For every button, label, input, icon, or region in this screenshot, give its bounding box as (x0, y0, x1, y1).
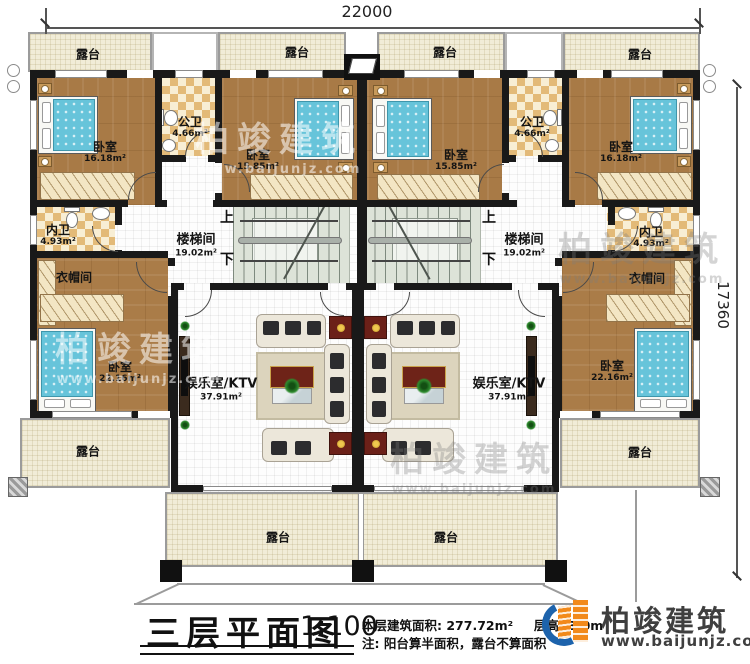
logo-building (558, 605, 571, 639)
room-label-cloakroom-1: 衣帽间 (56, 271, 92, 284)
window (30, 340, 37, 400)
company-logo-icon (542, 596, 596, 650)
room-label-ktv-1: 娱乐室/KTV37.91m² (185, 378, 258, 403)
stair-line (372, 220, 470, 222)
sliding-door (203, 486, 332, 491)
bed-bedroom-3 (372, 98, 432, 160)
wall-ensuite (562, 251, 693, 258)
wall-partition (502, 78, 509, 163)
room-label-terrace: 露台 (628, 48, 652, 61)
window (611, 70, 663, 78)
plant-icon (416, 378, 432, 394)
wall-partition (215, 78, 222, 163)
wardrobe (40, 172, 135, 200)
sink (92, 207, 110, 220)
deck-bottom-line (134, 603, 587, 605)
plant-icon (180, 321, 190, 331)
wall-partition (215, 193, 222, 207)
nightstand (373, 85, 388, 96)
ground-line-right (635, 490, 637, 602)
room-label-public-bath-2: 公卫4.66m² (514, 116, 550, 140)
nightstand (38, 83, 52, 94)
room-label-terrace: 露台 (434, 531, 458, 544)
room-label-public-bath-1: 公卫4.66m² (172, 116, 208, 140)
wall-party-lower (352, 283, 364, 492)
company-website: www.baijunjz.com (601, 632, 750, 650)
floor-plan-sheet: 22000 17360 (0, 0, 750, 664)
window (30, 215, 37, 245)
speaker (329, 432, 352, 455)
room-label-terrace: 露台 (76, 445, 100, 458)
window (52, 411, 132, 418)
speaker (364, 432, 387, 455)
plant-icon (526, 420, 536, 430)
wall-party-upper (357, 70, 367, 290)
wall-bath (162, 155, 186, 162)
window (693, 215, 700, 245)
wall-partition (562, 78, 569, 207)
wardrobe (250, 174, 353, 200)
stair-up-label: 上 (482, 207, 496, 227)
post-cap (703, 80, 716, 93)
wall-ktv-bottom (524, 485, 559, 492)
post-cap (7, 80, 20, 93)
stair-down-label: 下 (482, 249, 496, 269)
deck-edge-line (177, 583, 545, 585)
chimney (344, 54, 380, 80)
plan-note: 注: 阳台算半面积，露台不算面积 (362, 633, 546, 652)
nightstand (338, 162, 353, 173)
room-label-cloakroom-2: 衣帽间 (629, 272, 665, 285)
terrace-gap-right (505, 32, 563, 72)
speaker (364, 316, 387, 339)
wall-partition (502, 193, 509, 207)
wall-ktv-right (552, 283, 559, 492)
wall-partition (155, 78, 162, 207)
column (352, 560, 374, 582)
stair-up-label: 上 (220, 207, 234, 227)
stair-line (240, 260, 338, 262)
nightstand (677, 83, 691, 94)
logo-building (573, 600, 588, 642)
wall-stair-bottom (394, 283, 512, 290)
right-dimension-line (736, 87, 738, 578)
wall-mid (30, 200, 128, 207)
top-dimension-line (45, 27, 700, 29)
room-label-terrace: 露台 (76, 48, 100, 61)
nightstand (38, 156, 52, 167)
stair-down-label: 下 (220, 249, 234, 269)
plant-icon (526, 321, 536, 331)
nightstand (338, 85, 353, 96)
deck-slant-left (136, 583, 179, 604)
window (693, 340, 700, 400)
nightstand (373, 162, 388, 173)
stair-handrail-1 (238, 237, 342, 244)
wall-bath (509, 155, 516, 162)
wall-stair-bottom (210, 283, 328, 290)
stair-handrail-2 (368, 237, 472, 244)
wall-cloak (168, 258, 175, 266)
sliding-door (374, 486, 524, 491)
wall-ensuite (608, 200, 615, 225)
room-label-bedroom-4: 卧室16.18m² (600, 141, 642, 165)
wardrobe (597, 172, 692, 200)
room-label-ensuite-1: 内卫4.93m² (40, 224, 76, 248)
room-label-terrace: 露台 (285, 46, 309, 59)
corner-pier-right (700, 477, 720, 497)
room-label-ktv-2: 娱乐室/KTV37.91m² (473, 378, 546, 403)
sofa-chaise (324, 344, 350, 424)
terrace-top-midleft (218, 32, 346, 72)
wardrobe-cloak-1b (40, 294, 124, 322)
room-label-terrace: 露台 (266, 531, 290, 544)
terrace-door-gap (230, 70, 256, 78)
window (175, 70, 203, 78)
sofa (390, 314, 460, 348)
title-underline (140, 645, 354, 655)
terrace-door-gap (127, 70, 153, 78)
bed-bedroom-5 (38, 328, 96, 412)
terrace-door-gap (560, 411, 592, 418)
chimney-window (348, 58, 377, 74)
right-dimension-label: 17360 (714, 274, 732, 336)
plant-icon (180, 420, 190, 430)
room-label-bedroom-5: 卧室22.16m² (99, 361, 141, 385)
room-label-terrace: 露台 (628, 446, 652, 459)
wall-ktv-bottom (332, 485, 374, 492)
terrace-door-gap (138, 411, 170, 418)
wardrobe (377, 174, 480, 200)
column (160, 560, 182, 582)
floor-area-value: 本层建筑面积: 277.72m² (362, 618, 513, 633)
room-label-bedroom-2: 卧室15.85m² (237, 149, 279, 173)
window (268, 70, 323, 78)
wall-ktv-left (171, 283, 178, 492)
window (693, 100, 700, 150)
speaker (329, 316, 352, 339)
room-label-stairwell-1: 楼梯间19.02m² (175, 234, 217, 259)
room-label-stairwell-2: 楼梯间19.02m² (503, 234, 545, 259)
nightstand (677, 156, 691, 167)
wall-ensuite (115, 200, 122, 225)
terrace-gap-left (152, 32, 218, 72)
wall-cloak (555, 258, 562, 266)
room-label-bedroom-3: 卧室15.85m² (435, 149, 477, 173)
sink (545, 139, 559, 152)
sofa (262, 428, 334, 462)
wall-stair-bottom (346, 283, 376, 290)
sofa (256, 314, 326, 348)
column (545, 560, 567, 582)
window (30, 100, 37, 150)
room-label-terrace: 露台 (433, 46, 457, 59)
bed-bedroom-6 (634, 328, 692, 412)
stair-line (240, 220, 338, 222)
post-cap (703, 64, 716, 77)
wall-stair-bottom (178, 283, 184, 290)
plant-icon (284, 378, 300, 394)
window (404, 70, 459, 78)
post-cap (7, 64, 20, 77)
bed-bedroom-2 (294, 98, 354, 160)
corner-pier-left (8, 477, 28, 497)
terrace-divider (358, 494, 364, 566)
wall-stair-bottom (538, 283, 552, 290)
terrace-door-gap (577, 70, 603, 78)
top-dimension-label: 22000 (327, 2, 407, 21)
window (55, 70, 107, 78)
wall-ensuite (30, 251, 168, 258)
sink (162, 139, 176, 152)
room-label-ensuite-2: 内卫4.93m² (633, 226, 669, 250)
sofa (382, 428, 454, 462)
room-label-bedroom-1: 卧室16.18m² (84, 141, 126, 165)
terrace-door-gap (474, 70, 500, 78)
wardrobe-cloak-2b (606, 294, 690, 322)
window (600, 411, 680, 418)
sink (618, 207, 636, 220)
wall-ktv-bottom (171, 485, 203, 492)
wall-mid (602, 200, 693, 207)
window (527, 70, 555, 78)
sofa-chaise (366, 344, 392, 424)
room-label-bedroom-6: 卧室22.16m² (591, 360, 633, 384)
